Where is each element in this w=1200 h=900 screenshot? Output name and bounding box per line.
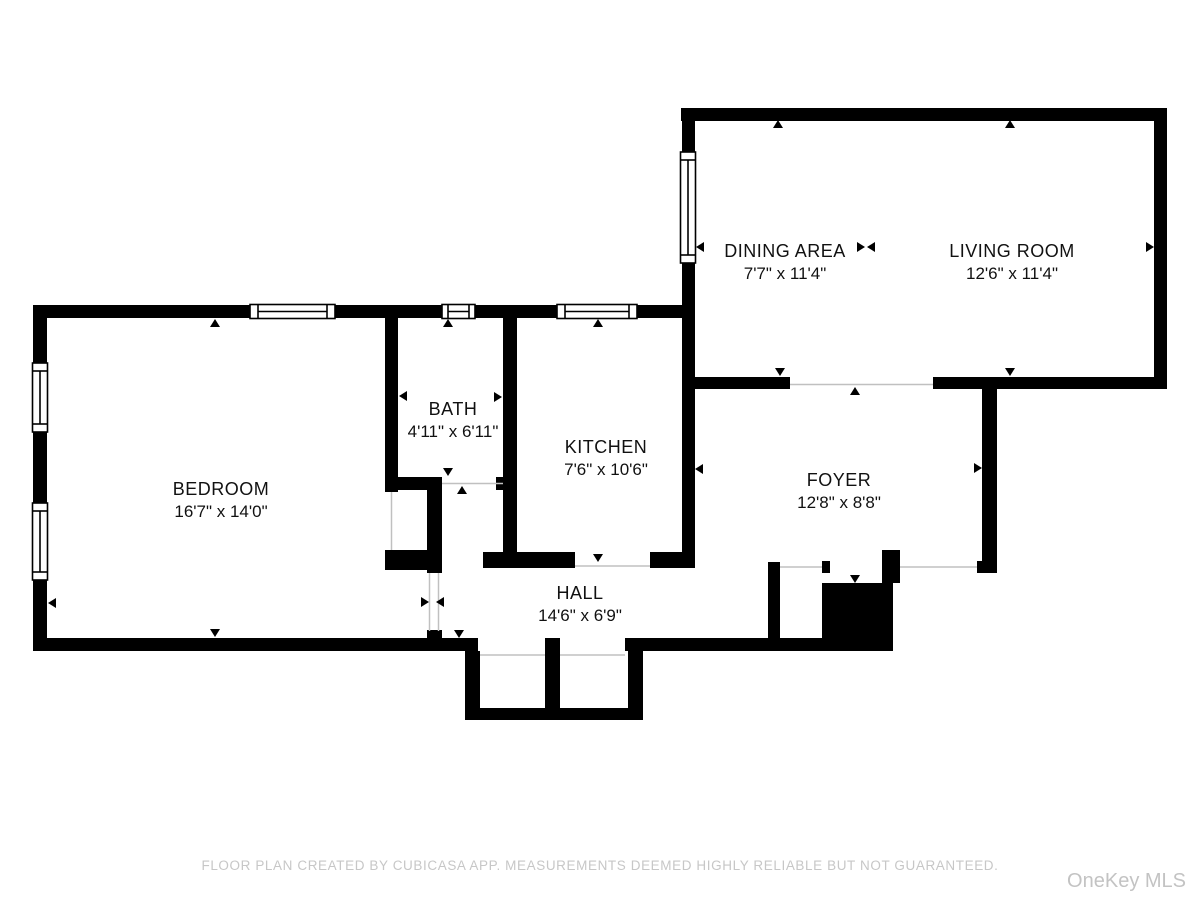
mls-watermark: OneKey MLS [1067, 870, 1186, 893]
room-name: KITCHEN [564, 436, 648, 459]
windows [33, 152, 696, 580]
room-name: HALL [538, 582, 622, 605]
window-icon [557, 305, 637, 319]
room-name: BATH [408, 398, 499, 421]
window-icon [250, 305, 335, 319]
room-dimensions: 7'6" x 10'6" [564, 459, 648, 480]
room-name: FOYER [797, 469, 881, 492]
window-icon [33, 503, 48, 580]
room-label-kitchen: KITCHEN 7'6" x 10'6" [564, 436, 648, 480]
room-dimensions: 7'7" x 11'4" [724, 263, 846, 284]
room-label-foyer: FOYER 12'8" x 8'8" [797, 469, 881, 513]
floor-plan: DINING AREA 7'7" x 11'4" LIVING ROOM 12'… [0, 0, 1200, 900]
room-dimensions: 4'11" x 6'11" [408, 421, 499, 442]
room-label-living-room: LIVING ROOM 12'6" x 11'4" [949, 240, 1075, 284]
room-dimensions: 14'6" x 6'9" [538, 605, 622, 626]
stair-block [822, 583, 893, 651]
room-label-bath: BATH 4'11" x 6'11" [408, 398, 499, 442]
room-dimensions: 12'6" x 11'4" [949, 263, 1075, 284]
room-label-dining-area: DINING AREA 7'7" x 11'4" [724, 240, 846, 284]
footer-disclaimer: FLOOR PLAN CREATED BY CUBICASA APP. MEAS… [0, 858, 1200, 873]
window-icon [442, 305, 475, 319]
room-dimensions: 16'7" x 14'0" [173, 501, 270, 522]
room-name: BEDROOM [173, 478, 270, 501]
walls [33, 108, 1167, 720]
room-label-bedroom: BEDROOM 16'7" x 14'0" [173, 478, 270, 522]
room-name: LIVING ROOM [949, 240, 1075, 263]
room-name: DINING AREA [724, 240, 846, 263]
room-dimensions: 12'8" x 8'8" [797, 492, 881, 513]
window-icon [681, 152, 696, 263]
room-label-hall: HALL 14'6" x 6'9" [538, 582, 622, 626]
window-icon [33, 363, 48, 432]
